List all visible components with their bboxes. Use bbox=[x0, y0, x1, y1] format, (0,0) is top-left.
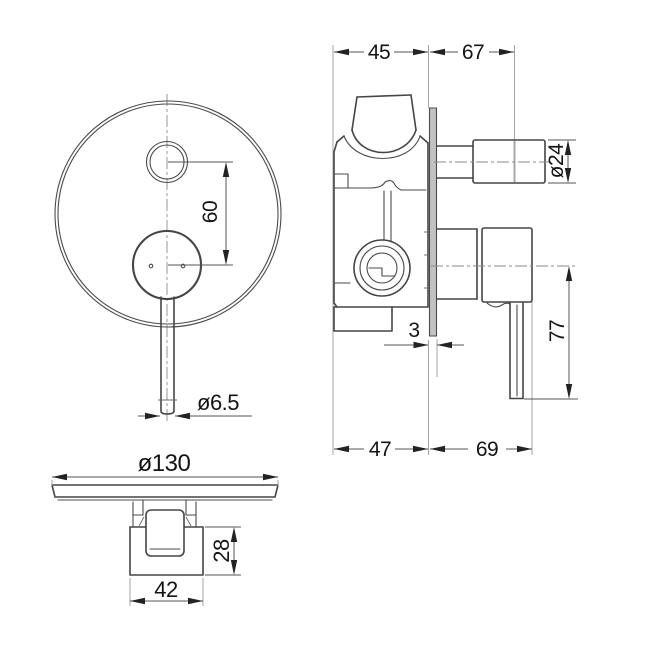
dim-side-45: 45 bbox=[334, 41, 428, 64]
diverter-button-side bbox=[434, 140, 552, 183]
side-view: 45 67 ø24 3 bbox=[333, 41, 578, 461]
dim-side-47: 47 bbox=[334, 438, 428, 461]
dim-bottom-plate-diameter: ø130 bbox=[52, 450, 278, 486]
dim-label-47: 47 bbox=[369, 438, 391, 461]
dim-label-28: 28 bbox=[209, 539, 234, 563]
dim-side-69: 69 bbox=[430, 438, 532, 461]
dim-label-o130: ø130 bbox=[138, 450, 191, 477]
dim-label-77: 77 bbox=[546, 320, 569, 342]
dim-label-3: 3 bbox=[408, 319, 419, 342]
cartridge-housing bbox=[146, 510, 184, 556]
dim-bottom-28: 28 bbox=[205, 527, 241, 575]
dim-label-42: 42 bbox=[154, 577, 178, 602]
front-view: 60 ø6.5 bbox=[55, 94, 281, 424]
dim-label-o24: ø24 bbox=[545, 143, 568, 179]
valve-body bbox=[334, 95, 429, 331]
hub-pin-left bbox=[149, 264, 153, 268]
dim-label-45: 45 bbox=[368, 41, 390, 64]
faceplate-inner-circle bbox=[58, 104, 278, 324]
handle-side bbox=[431, 228, 576, 399]
lever-front bbox=[161, 297, 174, 414]
drawing-svg: 60 ø6.5 bbox=[0, 0, 645, 645]
dim-label-67: 67 bbox=[462, 41, 484, 64]
wall-plate-edge bbox=[430, 108, 437, 336]
dim-front-60: 60 bbox=[168, 162, 233, 265]
dim-side-plate-thickness: 3 bbox=[384, 319, 464, 377]
dim-label-lever-diameter: ø6.5 bbox=[197, 390, 239, 415]
dim-label-60: 60 bbox=[199, 201, 222, 223]
dim-bottom-42: 42 bbox=[130, 577, 203, 606]
technical-drawing-canvas: 60 ø6.5 bbox=[0, 0, 645, 645]
dim-side-67: 67 bbox=[430, 41, 514, 64]
dim-front-lever-diameter: ø6.5 bbox=[138, 390, 252, 419]
plate-edge bbox=[52, 485, 278, 497]
bottom-view: ø130 28 42 bbox=[52, 450, 278, 606]
faceplate-outer-circle bbox=[55, 101, 281, 327]
dim-side-button-diameter: ø24 bbox=[545, 140, 576, 183]
dim-label-69: 69 bbox=[476, 438, 498, 461]
